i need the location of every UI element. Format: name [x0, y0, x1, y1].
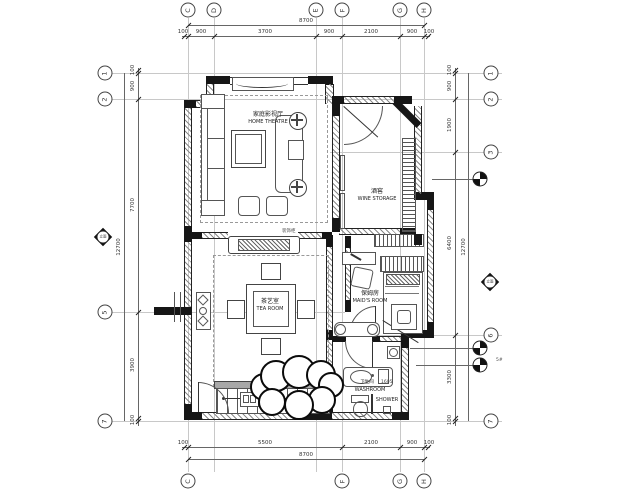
room-label-en: HOME THEATRE [248, 120, 287, 126]
dim-total-right: 12700 [461, 238, 467, 256]
wall-pier [326, 235, 333, 247]
grid-bubble-right: 1 [484, 66, 499, 81]
elevation-marker: 立面 [484, 276, 497, 289]
grid-label: H [420, 479, 428, 484]
wall-pier [427, 322, 434, 334]
ottoman [266, 196, 288, 216]
grid-label: 1 [101, 71, 109, 75]
grid-bubble-left: 5 [98, 305, 113, 320]
dim-seg: 900 [130, 81, 136, 92]
dim-total-bottom: 8700 [299, 452, 313, 458]
grid-bubble-top: E [309, 3, 324, 18]
wall-segment [427, 210, 434, 322]
room-label-zh: 酒窖 [371, 189, 383, 195]
sofa-seat [207, 168, 225, 202]
dim-total-left: 12700 [116, 238, 122, 256]
marker-leader [416, 365, 474, 366]
wall-pier [414, 234, 422, 245]
wall-pier [184, 100, 196, 108]
grid-label: G [396, 478, 404, 483]
grid-bubble-left: 1 [98, 66, 113, 81]
grid-bubble-right: 3 [484, 145, 499, 160]
dim-seg: 2100 [364, 29, 378, 35]
wall-pier [332, 96, 344, 104]
elevation-label: 立面 [487, 280, 494, 285]
grid-label: 2 [487, 97, 495, 101]
wall-segment [298, 232, 322, 239]
tea-stool [227, 300, 245, 319]
bed-blanket-line [385, 286, 419, 294]
wall-pier [206, 76, 230, 84]
window [174, 292, 181, 322]
dim-seg: 900 [407, 29, 418, 35]
grid-label: H [420, 8, 428, 13]
wall-pier [192, 232, 202, 239]
grid-line [112, 73, 502, 74]
wall-segment [401, 348, 409, 412]
grid-label: E [312, 8, 320, 12]
grid-line [342, 18, 343, 472]
dim-total-top: 8700 [299, 18, 313, 24]
grid-label: F [338, 8, 346, 12]
grid-bubble-left: 7 [98, 414, 113, 429]
wall-pier [345, 236, 351, 248]
dim-seg: 900 [324, 29, 335, 35]
shower-partition [371, 394, 373, 414]
door-swing-arc [345, 341, 373, 369]
grid-line [112, 421, 502, 422]
room-label-zh: 家庭影视厅 [253, 112, 283, 118]
shower-drain [383, 406, 391, 414]
tea-stool [297, 300, 315, 319]
dim-seg: 3900 [130, 358, 136, 372]
sofa-seat [207, 138, 225, 170]
grid-bubble-right: 7 [484, 414, 499, 429]
wall-segment [344, 96, 396, 104]
dim-line [455, 68, 456, 426]
dim-line [188, 25, 424, 26]
nightstand-lamp [397, 310, 411, 324]
wall-segment [332, 116, 340, 218]
tv-screen [236, 79, 288, 88]
sofa-armrest [201, 200, 225, 216]
tea-stool [261, 338, 281, 355]
speaker-cross [291, 186, 303, 188]
room-label-en: MAID'S ROOM [353, 299, 388, 305]
revision-cloud [284, 390, 314, 420]
console-cabinet-top [238, 239, 290, 251]
room-label-zh: 保姆房 [361, 291, 379, 297]
vanity-code: 1605 [381, 380, 392, 385]
grid-bubble-top: D [207, 3, 222, 18]
door-leaf [372, 341, 373, 368]
speaker-cross [291, 119, 303, 121]
grid-label: D [210, 7, 218, 12]
dim-seg: 900 [196, 29, 207, 35]
shower-label: SHOWER [376, 398, 398, 404]
room-label-en: WINE STORAGE [358, 197, 397, 203]
grid-label: C [184, 479, 192, 484]
room-label-en: TEA ROOM [257, 307, 284, 313]
dim-seg: 100 [447, 65, 453, 76]
grid-label: 7 [101, 419, 109, 423]
tea-stool [261, 263, 281, 280]
dim-line [182, 36, 430, 37]
wall-segment [202, 232, 228, 239]
console-label: 装饰柜 [282, 228, 296, 234]
grid-bubble-right: 6 [484, 328, 499, 343]
faucet [371, 374, 374, 377]
elevation-label: 立面 [100, 235, 107, 240]
detail-index-marker [473, 358, 488, 373]
detail-index-marker [473, 341, 488, 356]
revision-cloud [258, 388, 286, 416]
grid-label: 1 [487, 71, 495, 75]
dim-line [188, 459, 424, 460]
sliding-door [340, 155, 345, 191]
grid-label: 6 [487, 333, 495, 337]
panel-mark [243, 395, 249, 403]
dim-seg: 100 [130, 65, 136, 76]
chair [350, 266, 374, 290]
dim-line [468, 73, 469, 421]
wall-segment [184, 242, 192, 404]
wardrobe [380, 256, 424, 272]
grid-bubble-right: 2 [484, 92, 499, 107]
wall-pier [184, 226, 192, 242]
dim-seg: 5500 [258, 440, 272, 446]
grid-bubble-top: C [181, 3, 196, 18]
dim-seg: 1900 [447, 118, 453, 132]
side-table [288, 140, 304, 160]
dim-seg: 3700 [258, 29, 272, 35]
grid-bubble-top: F [335, 3, 350, 18]
speaker-icon [289, 179, 307, 197]
wall-segment [380, 336, 401, 342]
wall-pier [345, 300, 351, 312]
grid-label: G [396, 7, 404, 12]
grid-bubble-bottom: F [335, 474, 350, 489]
grid-label: 5 [101, 310, 109, 314]
wine-rack [402, 138, 416, 232]
wall-pier [184, 412, 202, 420]
grid-bubble-bottom: H [417, 474, 432, 489]
grid-bubble-bottom: G [393, 474, 408, 489]
room-label-en: WASHROOM [355, 388, 386, 394]
marker-leader [432, 179, 474, 180]
dim-line [124, 73, 125, 421]
dim-seg: 2100 [364, 440, 378, 446]
ottoman [238, 196, 260, 216]
floor-drain-circle [389, 348, 398, 357]
grid-bubble-top: G [393, 3, 408, 18]
display-item [199, 307, 207, 315]
coffee-table-inner [235, 134, 262, 164]
dim-seg: 900 [407, 440, 418, 446]
bench-end [367, 324, 378, 335]
grid-label: 3 [487, 150, 495, 154]
room-label-zh: 茶艺室 [261, 299, 279, 305]
dim-seg: 7700 [130, 198, 136, 212]
grid-label: 7 [487, 419, 495, 423]
grid-bubble-bottom: C [181, 474, 196, 489]
door-leaf [198, 382, 199, 412]
room-label-zh: 卫生间 [360, 380, 374, 386]
bed-pillow [386, 274, 420, 285]
index-note: 5# [496, 358, 503, 363]
wall-pier [332, 104, 340, 116]
wall-pier [392, 412, 409, 420]
sliding-door [340, 193, 345, 229]
bench-end [335, 324, 346, 335]
toilet-bowl [353, 401, 368, 417]
wall-segment [184, 108, 192, 228]
grid-bubble-left: 2 [98, 92, 113, 107]
dim-seg: 6400 [447, 236, 453, 250]
floor-plan-canvas: 8700 100 900 3700 900 2100 900 100 100 5… [0, 0, 625, 500]
grid-bubble-top: H [417, 3, 432, 18]
speaker-icon [289, 112, 307, 130]
wall-pier [154, 307, 192, 315]
elevation-marker: 立面 [97, 231, 110, 244]
detail-index-marker [473, 172, 488, 187]
dim-line [182, 447, 430, 448]
grid-label: F [338, 479, 346, 483]
grid-label: 2 [101, 97, 109, 101]
dim-seg: 900 [447, 81, 453, 92]
dim-seg: 3300 [447, 370, 453, 384]
grid-label: C [184, 8, 192, 13]
grid-line [424, 18, 425, 472]
sofa-seat [207, 108, 225, 140]
dim-line [138, 68, 139, 426]
marker-leader [410, 348, 474, 349]
